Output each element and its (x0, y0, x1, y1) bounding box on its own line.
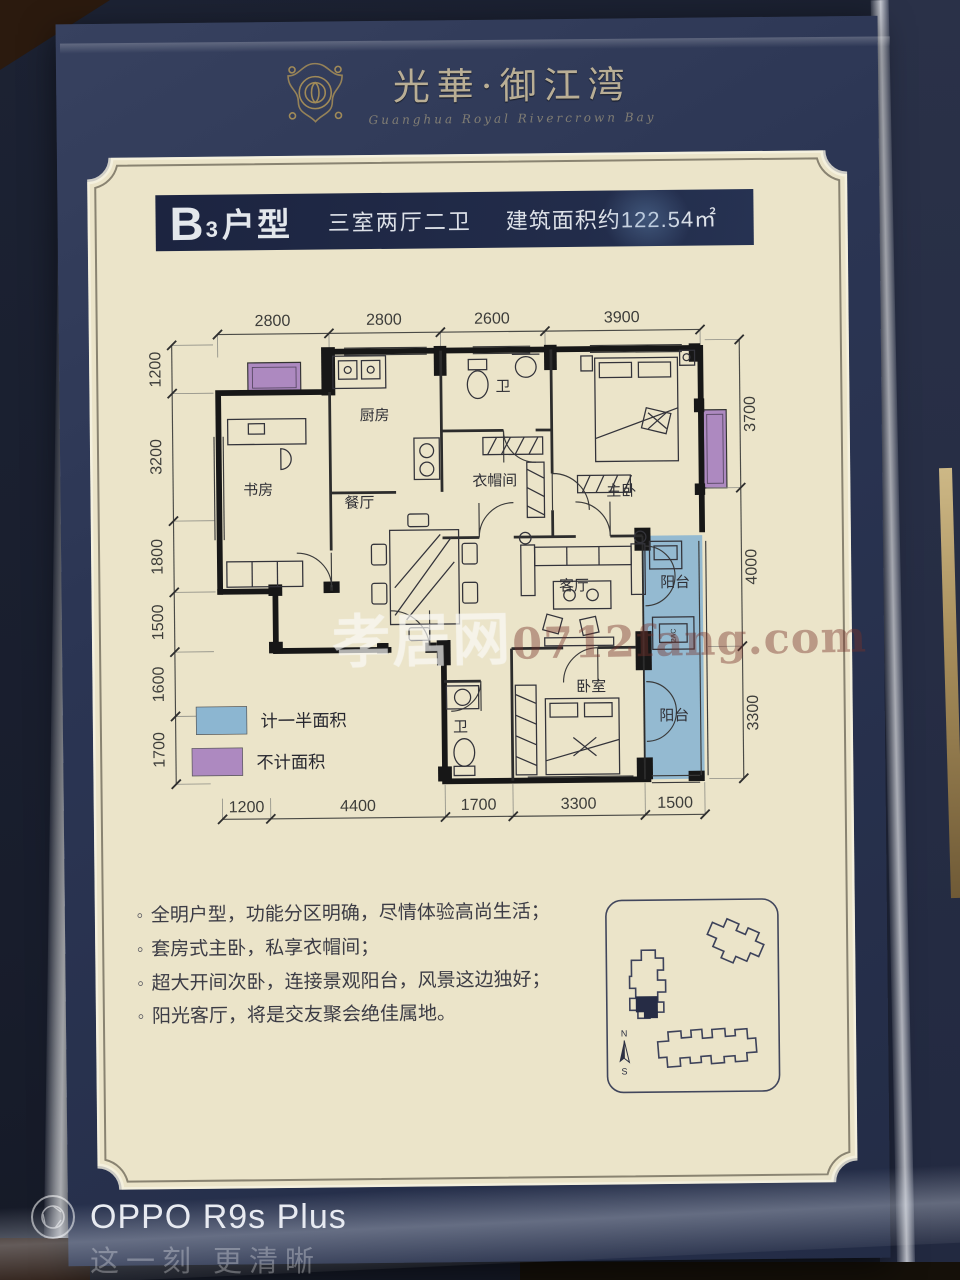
feature-text-2: 套房式主卧，私享衣帽间； (151, 931, 379, 967)
compass-icon: N S (619, 1028, 630, 1076)
ac-unit-label: 2AC (671, 629, 678, 642)
floor-plan: 2800 2800 2600 3900 1200 4400 1700 3300 … (136, 299, 786, 846)
room-label-bath1: 卫 (495, 378, 510, 395)
camera-watermark: OPPO R9s Plus 这一刻 更清晰 (28, 1192, 347, 1280)
feature-item: ◦ 套房式主卧，私享衣帽间； (129, 929, 599, 968)
table-edge-bottom-right (520, 1262, 960, 1280)
feature-item: ◦ 全明户型，功能分区明确，尽情体验高尚生活； (129, 895, 599, 934)
unit-number: 3 (205, 217, 218, 243)
dim-bottom-2: 1700 (461, 796, 497, 814)
bullet-icon: ◦ (129, 967, 151, 1001)
plan-legend: 计一半面积 不计面积 (192, 705, 348, 776)
legend-label-half-area: 计一半面积 (261, 710, 347, 731)
room-label-dining: 餐厅 (344, 495, 374, 512)
dim-left-1: 3200 (147, 439, 165, 475)
dim-top-0: 2800 (255, 312, 291, 330)
legend-swatch-no-area (192, 748, 243, 776)
bullet-icon: ◦ (130, 1001, 152, 1035)
feature-list: ◦ 全明户型，功能分区明确，尽情体验高尚生活； ◦ 套房式主卧，私享衣帽间； ◦… (129, 895, 600, 1035)
brochure-page: 光華·御江湾 Guanghua Royal Rivercrown Bay B 3… (56, 16, 891, 1267)
bullet-icon: ◦ (129, 899, 151, 933)
site-highlight-building (636, 996, 658, 1018)
brand-name: 光華·御江湾 (368, 54, 656, 111)
compass-north-label: N (621, 1028, 628, 1038)
unit-title-bar: B 3 户型 三室两厅二卫 建筑面积约122.54㎡ (155, 189, 754, 251)
legend-swatch-half-area (196, 707, 247, 735)
room-label-balcony2: 阳台 (659, 707, 689, 724)
legend-label-no-area: 不计面积 (256, 752, 325, 773)
dim-top-3: 3900 (604, 308, 640, 326)
site-buildings (629, 914, 769, 1069)
room-label-cloak: 衣帽间 (472, 472, 517, 489)
unit-type-label: 户型 (222, 198, 292, 247)
unit-letter: B (169, 199, 203, 246)
dim-bottom-1: 4400 (340, 797, 376, 815)
brand-rosette-icon (278, 55, 353, 130)
plastic-glare (592, 189, 702, 251)
feature-item: ◦ 阳光客厅，将是交友聚会绝佳属地。 (130, 996, 600, 1035)
room-label-master: 主卧 (606, 483, 636, 500)
dim-bottom-3: 3300 (561, 795, 597, 813)
room-label-bedroom: 卧室 (576, 678, 606, 695)
camera-slogan-text: 这一刻 更清晰 (90, 1238, 347, 1280)
room-label-study: 书房 (243, 482, 273, 499)
photo-of-brochure: 光華·御江湾 Guanghua Royal Rivercrown Bay B 3… (0, 0, 960, 1280)
dim-left-4: 1600 (150, 666, 168, 702)
balcony-half-area-zone (642, 535, 704, 779)
site-plan: N S (601, 887, 785, 1103)
dim-right-2: 3300 (744, 695, 762, 731)
room-label-bath2: 卫 (453, 719, 468, 736)
dim-right-0: 3700 (741, 396, 759, 432)
room-label-balcony1: 阳台 (660, 574, 690, 591)
feature-text-3: 超大开间次卧，连接景观阳台，风景这边独好； (151, 963, 550, 1001)
dim-left-0: 1200 (146, 352, 164, 388)
compass-south-label: S (621, 1066, 627, 1076)
room-count-label: 三室两厅二卫 (328, 204, 472, 238)
room-label-living: 客厅 (559, 577, 589, 594)
dim-top-1: 2800 (366, 311, 402, 329)
camera-lens-icon (28, 1192, 78, 1242)
dim-bottom-0: 1200 (229, 798, 265, 816)
room-label-kitchen: 厨房 (360, 407, 390, 424)
dim-bottom-4: 1500 (657, 794, 693, 812)
brand-subtitle: Guanghua Royal Rivercrown Bay (369, 110, 657, 127)
dim-left-3: 1500 (149, 604, 167, 640)
bullet-icon: ◦ (129, 933, 151, 967)
dim-top-2: 2600 (474, 309, 510, 327)
feature-text-4: 阳光客厅，将是交友聚会绝佳属地。 (152, 998, 456, 1035)
feature-text-1: 全明户型，功能分区明确，尽情体验高尚生活； (151, 895, 550, 933)
camera-model-text: OPPO R9s Plus (90, 1198, 347, 1237)
dim-left-2: 1800 (148, 539, 166, 575)
feature-item: ◦ 超大开间次卧，连接景观阳台，风景这边独好； (129, 962, 599, 1001)
dim-left-5: 1700 (150, 732, 168, 768)
brand-header: 光華·御江湾 Guanghua Royal Rivercrown Bay (56, 50, 879, 133)
dim-right-1: 4000 (742, 549, 760, 585)
